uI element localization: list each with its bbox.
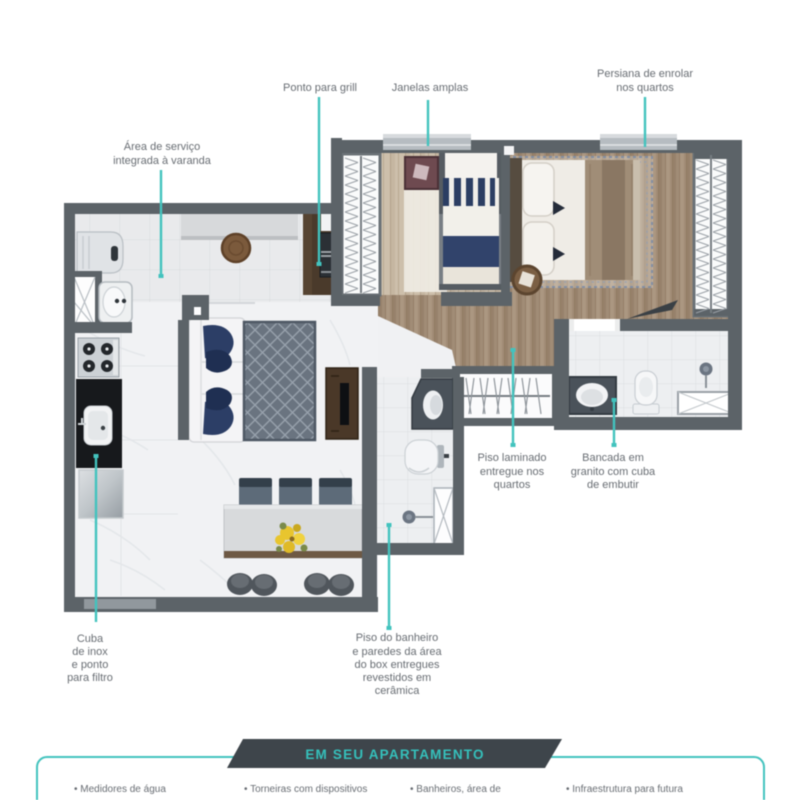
svg-text:integrada à varanda: integrada à varanda bbox=[113, 155, 212, 167]
svg-text:quartos: quartos bbox=[494, 479, 531, 491]
svg-text:Piso do banheiro: Piso do banheiro bbox=[356, 632, 439, 644]
svg-text:Cuba: Cuba bbox=[77, 633, 104, 645]
svg-text:do box entregues: do box entregues bbox=[354, 659, 440, 671]
svg-text:cerâmica: cerâmica bbox=[375, 685, 421, 697]
svg-text:• Banheiros, área de: • Banheiros, área de bbox=[410, 784, 501, 795]
svg-text:EM SEU APARTAMENTO: EM SEU APARTAMENTO bbox=[305, 747, 484, 762]
svg-text:Persiana de enrolar: Persiana de enrolar bbox=[597, 68, 693, 80]
svg-text:• Infraestrutura para futura: • Infraestrutura para futura bbox=[566, 784, 683, 795]
svg-text:de embutir: de embutir bbox=[587, 479, 639, 491]
svg-text:nos quartos: nos quartos bbox=[616, 82, 674, 94]
svg-text:e paredes da área: e paredes da área bbox=[352, 646, 442, 658]
svg-text:• Torneiras com dispositivos: • Torneiras com dispositivos bbox=[244, 784, 367, 795]
svg-text:revestidos em: revestidos em bbox=[363, 672, 431, 684]
svg-text:Janelas amplas: Janelas amplas bbox=[392, 82, 469, 94]
svg-text:Piso laminado: Piso laminado bbox=[477, 452, 546, 464]
svg-text:para filtro: para filtro bbox=[67, 672, 113, 684]
svg-text:• Medidores de água: • Medidores de água bbox=[74, 784, 166, 795]
svg-text:Bancada em: Bancada em bbox=[582, 452, 644, 464]
svg-text:de inox: de inox bbox=[72, 646, 108, 658]
svg-text:Ponto para grill: Ponto para grill bbox=[283, 82, 357, 94]
svg-text:granito com cuba: granito com cuba bbox=[571, 466, 656, 478]
svg-text:entregue nos: entregue nos bbox=[480, 466, 545, 478]
svg-text:Área de serviço: Área de serviço bbox=[124, 140, 200, 153]
svg-text:e ponto: e ponto bbox=[72, 659, 109, 671]
